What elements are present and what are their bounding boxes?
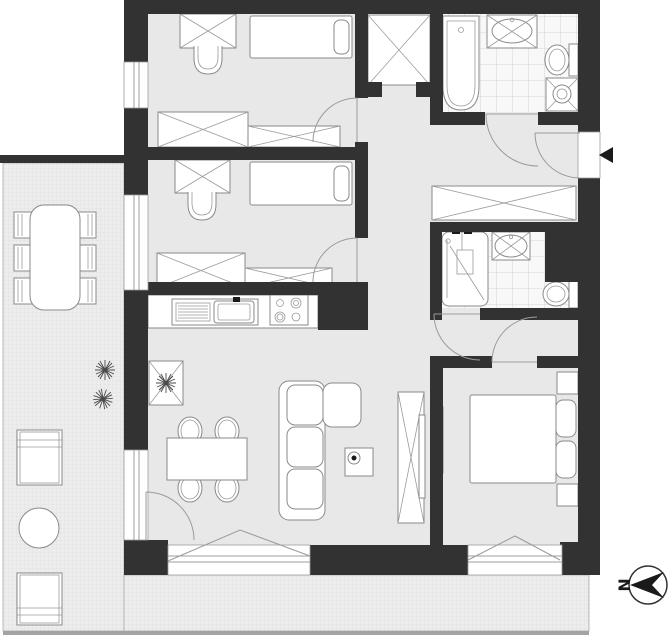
desk-icon <box>180 14 236 48</box>
kitchen-sink-icon <box>172 297 258 325</box>
terrace-floor-bottom <box>124 575 589 631</box>
single-bed-icon <box>250 162 352 205</box>
single-bed-icon <box>250 16 352 58</box>
shower-icon <box>442 229 488 306</box>
tv-sideboard-icon <box>398 392 425 523</box>
outdoor-table-icon <box>14 205 96 310</box>
outdoor-chairs-right <box>78 212 96 304</box>
lounger-icon <box>17 430 62 485</box>
north-compass: N <box>615 566 668 604</box>
wardrobe-icon <box>248 126 340 147</box>
side-table-lamp-icon <box>345 448 373 476</box>
wardrobe-icon <box>158 112 248 147</box>
desk-chair-icon <box>194 46 222 74</box>
bathtub-icon <box>443 16 479 110</box>
floor-plan-page: N <box>0 0 669 640</box>
cooktop-icon <box>270 295 308 325</box>
plant-icon <box>95 360 115 380</box>
washbasin-icon <box>487 15 537 48</box>
entrance-arrow-icon <box>599 147 613 163</box>
washing-machine-icon <box>546 78 578 111</box>
terrace-baseline <box>3 631 589 635</box>
round-table-icon <box>19 508 59 548</box>
nightstand-icon <box>557 372 578 394</box>
toilet-icon <box>543 281 578 308</box>
plant-stand-icon <box>149 361 183 405</box>
window <box>124 195 148 290</box>
toilet-icon <box>545 44 578 76</box>
lounger-icon <box>17 573 62 625</box>
floor-plan-drawing: N <box>0 0 669 640</box>
washbasin-icon <box>492 232 530 260</box>
window <box>124 62 148 108</box>
nightstand-icon <box>557 484 578 506</box>
closet-wardrobe-icon <box>368 15 430 85</box>
desk-chair-icon <box>188 192 216 220</box>
hall-wardrobe-icon <box>432 186 576 220</box>
outdoor-chairs-left <box>14 212 32 304</box>
desk-icon <box>175 160 230 193</box>
compass-letter: N <box>615 578 634 591</box>
corridor-floor <box>368 85 430 295</box>
